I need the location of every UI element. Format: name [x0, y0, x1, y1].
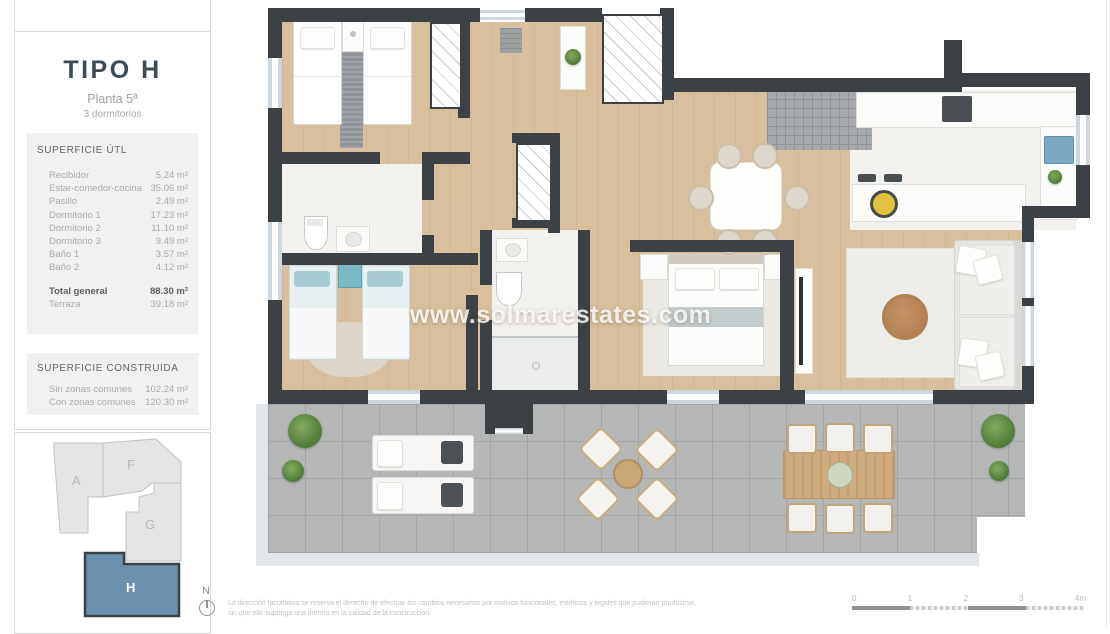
row-value: 11.10 m² — [151, 222, 188, 235]
table-row: Sin zonas comunes102.24 m² — [49, 383, 188, 396]
table-row: Dormitorio 39.49 m² — [49, 235, 188, 248]
toilet — [304, 216, 328, 250]
scale-label: 2 — [963, 594, 967, 603]
key-plan-box: A F G H — [14, 432, 211, 634]
table-row: Recibidor5.24 m² — [49, 169, 188, 182]
table-row: Dormitorio 117.23 m² — [49, 209, 188, 222]
outdoor-dining-chair — [825, 504, 855, 534]
single-bed — [363, 20, 412, 125]
info-panel: TIPO H Planta 5ª 3 dormitorios SUPERFICI… — [14, 31, 211, 430]
row-label: Dormitorio 3 — [49, 235, 101, 248]
page-right-border — [1106, 0, 1107, 626]
plant — [1048, 170, 1062, 184]
sofa — [954, 240, 1026, 390]
sun-lounger — [372, 435, 474, 471]
wardrobe-closet — [430, 22, 462, 109]
sliding-door — [667, 390, 719, 404]
plant — [989, 461, 1009, 481]
wall-segment — [282, 253, 478, 265]
sliding-door — [368, 390, 420, 404]
scale-segments — [852, 606, 1086, 610]
bed-pillow — [367, 271, 403, 287]
built-area-table: Sin zonas comunes102.24 m² Con zonas com… — [49, 383, 188, 409]
row-value: 2.49 m² — [156, 195, 188, 208]
scale-segment — [910, 606, 968, 610]
table-row: Pasillo2.49 m² — [49, 195, 188, 208]
lounger-pillow — [377, 482, 403, 510]
bed-fold-line — [364, 76, 411, 77]
building-key-plan: A F G H — [15, 433, 210, 627]
shower-area — [492, 336, 578, 392]
bed-pillow — [675, 268, 715, 290]
table-centerpiece — [827, 462, 853, 488]
row-label: Total general — [49, 285, 107, 298]
unit-h-label: H — [126, 580, 135, 595]
row-value: 9.49 m² — [156, 235, 188, 248]
decor-item — [350, 31, 356, 37]
window — [1076, 115, 1090, 165]
scale-segment — [852, 606, 910, 610]
outdoor-dining-chair — [787, 503, 817, 533]
terrace-edge-left — [256, 404, 268, 566]
wall-segment — [525, 8, 602, 22]
nightstand — [640, 254, 668, 280]
table-row: Dormitorio 211.10 m² — [49, 222, 188, 235]
row-label: Sin zonas comunes — [49, 383, 132, 396]
scale-label: 0 — [852, 594, 856, 603]
bed-pillow — [294, 271, 330, 287]
bed-pillow — [719, 268, 759, 290]
window — [268, 58, 282, 108]
lounger-towel — [441, 483, 463, 507]
terrace-edge-bottom — [256, 553, 979, 566]
row-value: 17.23 m² — [151, 209, 189, 222]
plant — [981, 414, 1015, 448]
window — [1022, 306, 1034, 366]
sun-lounger — [372, 477, 474, 514]
bed-fold-line — [294, 76, 341, 77]
single-bed — [289, 265, 337, 360]
useful-area-panel: SUPERFICIE ÚTL Recibidor5.24 m² Estar-co… — [27, 133, 198, 334]
panel-header-box — [14, 0, 211, 32]
wall-segment — [282, 152, 380, 164]
total-row: Total general88.30 m² — [49, 285, 188, 298]
useful-area-table: Recibidor5.24 m² Estar-comedor-cocina35.… — [49, 169, 188, 311]
row-label: Recibidor — [49, 169, 89, 182]
compass-needle — [206, 601, 208, 608]
dining-table — [710, 162, 782, 230]
compass-north-label: N — [196, 585, 216, 597]
fruit-bowl — [870, 190, 898, 218]
table-row: Con zonas comunes120.30 m² — [49, 396, 188, 409]
window — [1022, 242, 1034, 298]
table-row: Estar-comedor-cocina35.06 m² — [49, 182, 188, 195]
scale-segment — [1026, 606, 1084, 610]
disclaimer-line: sin que ello suponga una merma en la cal… — [228, 609, 898, 619]
vent-grille — [500, 28, 522, 53]
row-value: 3.57 m² — [156, 248, 188, 261]
table-row: Baño 13.57 m² — [49, 248, 188, 261]
row-label: Dormitorio 1 — [49, 209, 101, 222]
wall-segment — [422, 235, 434, 253]
built-area-heading: SUPERFICIE CONSTRUIDA — [37, 363, 179, 374]
wall-segment — [422, 152, 470, 164]
bed-headboard — [669, 255, 763, 264]
dining-chair — [688, 185, 714, 211]
row-label: Baño 2 — [49, 261, 79, 274]
washbasin — [336, 226, 370, 252]
basin-bowl — [505, 243, 521, 257]
wall-segment — [480, 230, 492, 285]
bed-pillow — [370, 27, 405, 49]
unit-a-label: A — [72, 473, 81, 488]
row-value: 35.06 m² — [151, 182, 189, 195]
nightstand — [342, 20, 364, 52]
wall-segment — [630, 240, 792, 252]
shower-drain — [532, 362, 540, 370]
dining-chair — [752, 143, 778, 169]
built-area-panel: SUPERFICIE CONSTRUIDA Sin zonas comunes1… — [27, 353, 198, 415]
outdoor-dining-chair — [863, 424, 893, 454]
row-label: Dormitorio 2 — [49, 222, 101, 235]
unit-g-label: G — [145, 517, 155, 532]
disclaimer: La dirección facultativa se reserva el d… — [228, 599, 898, 618]
table-row: Baño 24.12 m² — [49, 261, 188, 274]
single-bed — [362, 265, 410, 360]
outdoor-dining-table — [783, 450, 895, 499]
scale-label: 3 — [1019, 594, 1023, 603]
console-table — [560, 26, 586, 90]
row-label: Terraza — [49, 298, 81, 311]
outdoor-dining-chair — [863, 503, 893, 533]
disclaimer-line: La dirección facultativa se reserva el d… — [228, 599, 898, 609]
row-value: 120.30 m² — [145, 396, 188, 409]
toilet-tank — [307, 219, 323, 226]
row-value: 88.30 m² — [150, 285, 188, 298]
bedrooms-subtitle: 3 dormitorios — [15, 109, 210, 120]
wall-segment — [780, 240, 794, 390]
dining-chair — [716, 143, 742, 169]
row-value: 4.12 m² — [156, 261, 188, 274]
row-value: 5.24 m² — [156, 169, 188, 182]
useful-area-heading: SUPERFICIE ÚTL — [37, 145, 127, 156]
wardrobe-closet — [602, 14, 664, 104]
kitchen-sink — [1044, 136, 1074, 164]
bed-duvet — [290, 308, 336, 358]
bed-duvet — [363, 308, 409, 358]
scale-labels: 0 1 2 3 4m — [852, 594, 1086, 603]
stove-cooktop — [942, 96, 972, 122]
scale-bar: 0 1 2 3 4m — [852, 594, 1086, 610]
terrace-row: Terraza39.18 m² — [49, 298, 188, 311]
window — [805, 390, 933, 404]
dining-chair — [784, 185, 810, 211]
row-value: 39.18 m² — [151, 298, 189, 311]
bar-stool — [858, 174, 876, 182]
unit-f-label: F — [127, 457, 135, 472]
wall-segment — [512, 133, 552, 143]
scale-label: 1 — [908, 594, 912, 603]
floor-subtitle: Planta 5ª — [15, 92, 210, 106]
wardrobe-closet — [516, 143, 552, 222]
page-title: TIPO H — [15, 56, 210, 85]
outdoor-dining-chair — [787, 424, 817, 454]
row-value: 102.24 m² — [145, 383, 188, 396]
wall-segment — [422, 164, 434, 200]
tv-unit — [795, 268, 813, 374]
lounger-pillow — [377, 440, 403, 467]
coffee-table — [882, 294, 928, 340]
wall-segment — [944, 73, 1090, 87]
lounger-towel — [441, 441, 463, 464]
washbasin — [496, 238, 528, 262]
outdoor-side-table — [613, 459, 643, 489]
row-label: Estar-comedor-cocina — [49, 182, 142, 195]
window — [268, 222, 282, 300]
outdoor-dining-chair — [825, 423, 855, 453]
single-bed — [293, 20, 342, 125]
bed-pillow — [300, 27, 335, 49]
scale-segment — [968, 606, 1026, 610]
nightstand — [338, 262, 362, 288]
terrace-notch — [977, 517, 1025, 553]
row-label: Baño 1 — [49, 248, 79, 261]
watermark: www.solmarestates.com — [410, 301, 710, 330]
compass-icon — [199, 600, 215, 616]
floor-plan: www.solmarestates.com — [230, 0, 1110, 626]
wall-segment — [660, 78, 962, 92]
row-label: Con zonas comunes — [49, 396, 136, 409]
unit-a-shape — [54, 443, 103, 533]
basin-bowl — [345, 232, 362, 247]
sofa-pillow — [975, 351, 1006, 382]
tv-screen — [799, 277, 803, 365]
entry-door-opening — [480, 10, 525, 20]
bar-stool — [884, 174, 902, 182]
wall-segment — [480, 320, 492, 390]
plant — [565, 49, 581, 65]
wall-segment — [268, 8, 480, 22]
row-label: Pasillo — [49, 195, 77, 208]
wall-segment — [1022, 206, 1034, 404]
plant — [282, 460, 304, 482]
window — [495, 428, 523, 434]
plant — [288, 414, 322, 448]
scale-label: 4m — [1075, 594, 1086, 603]
